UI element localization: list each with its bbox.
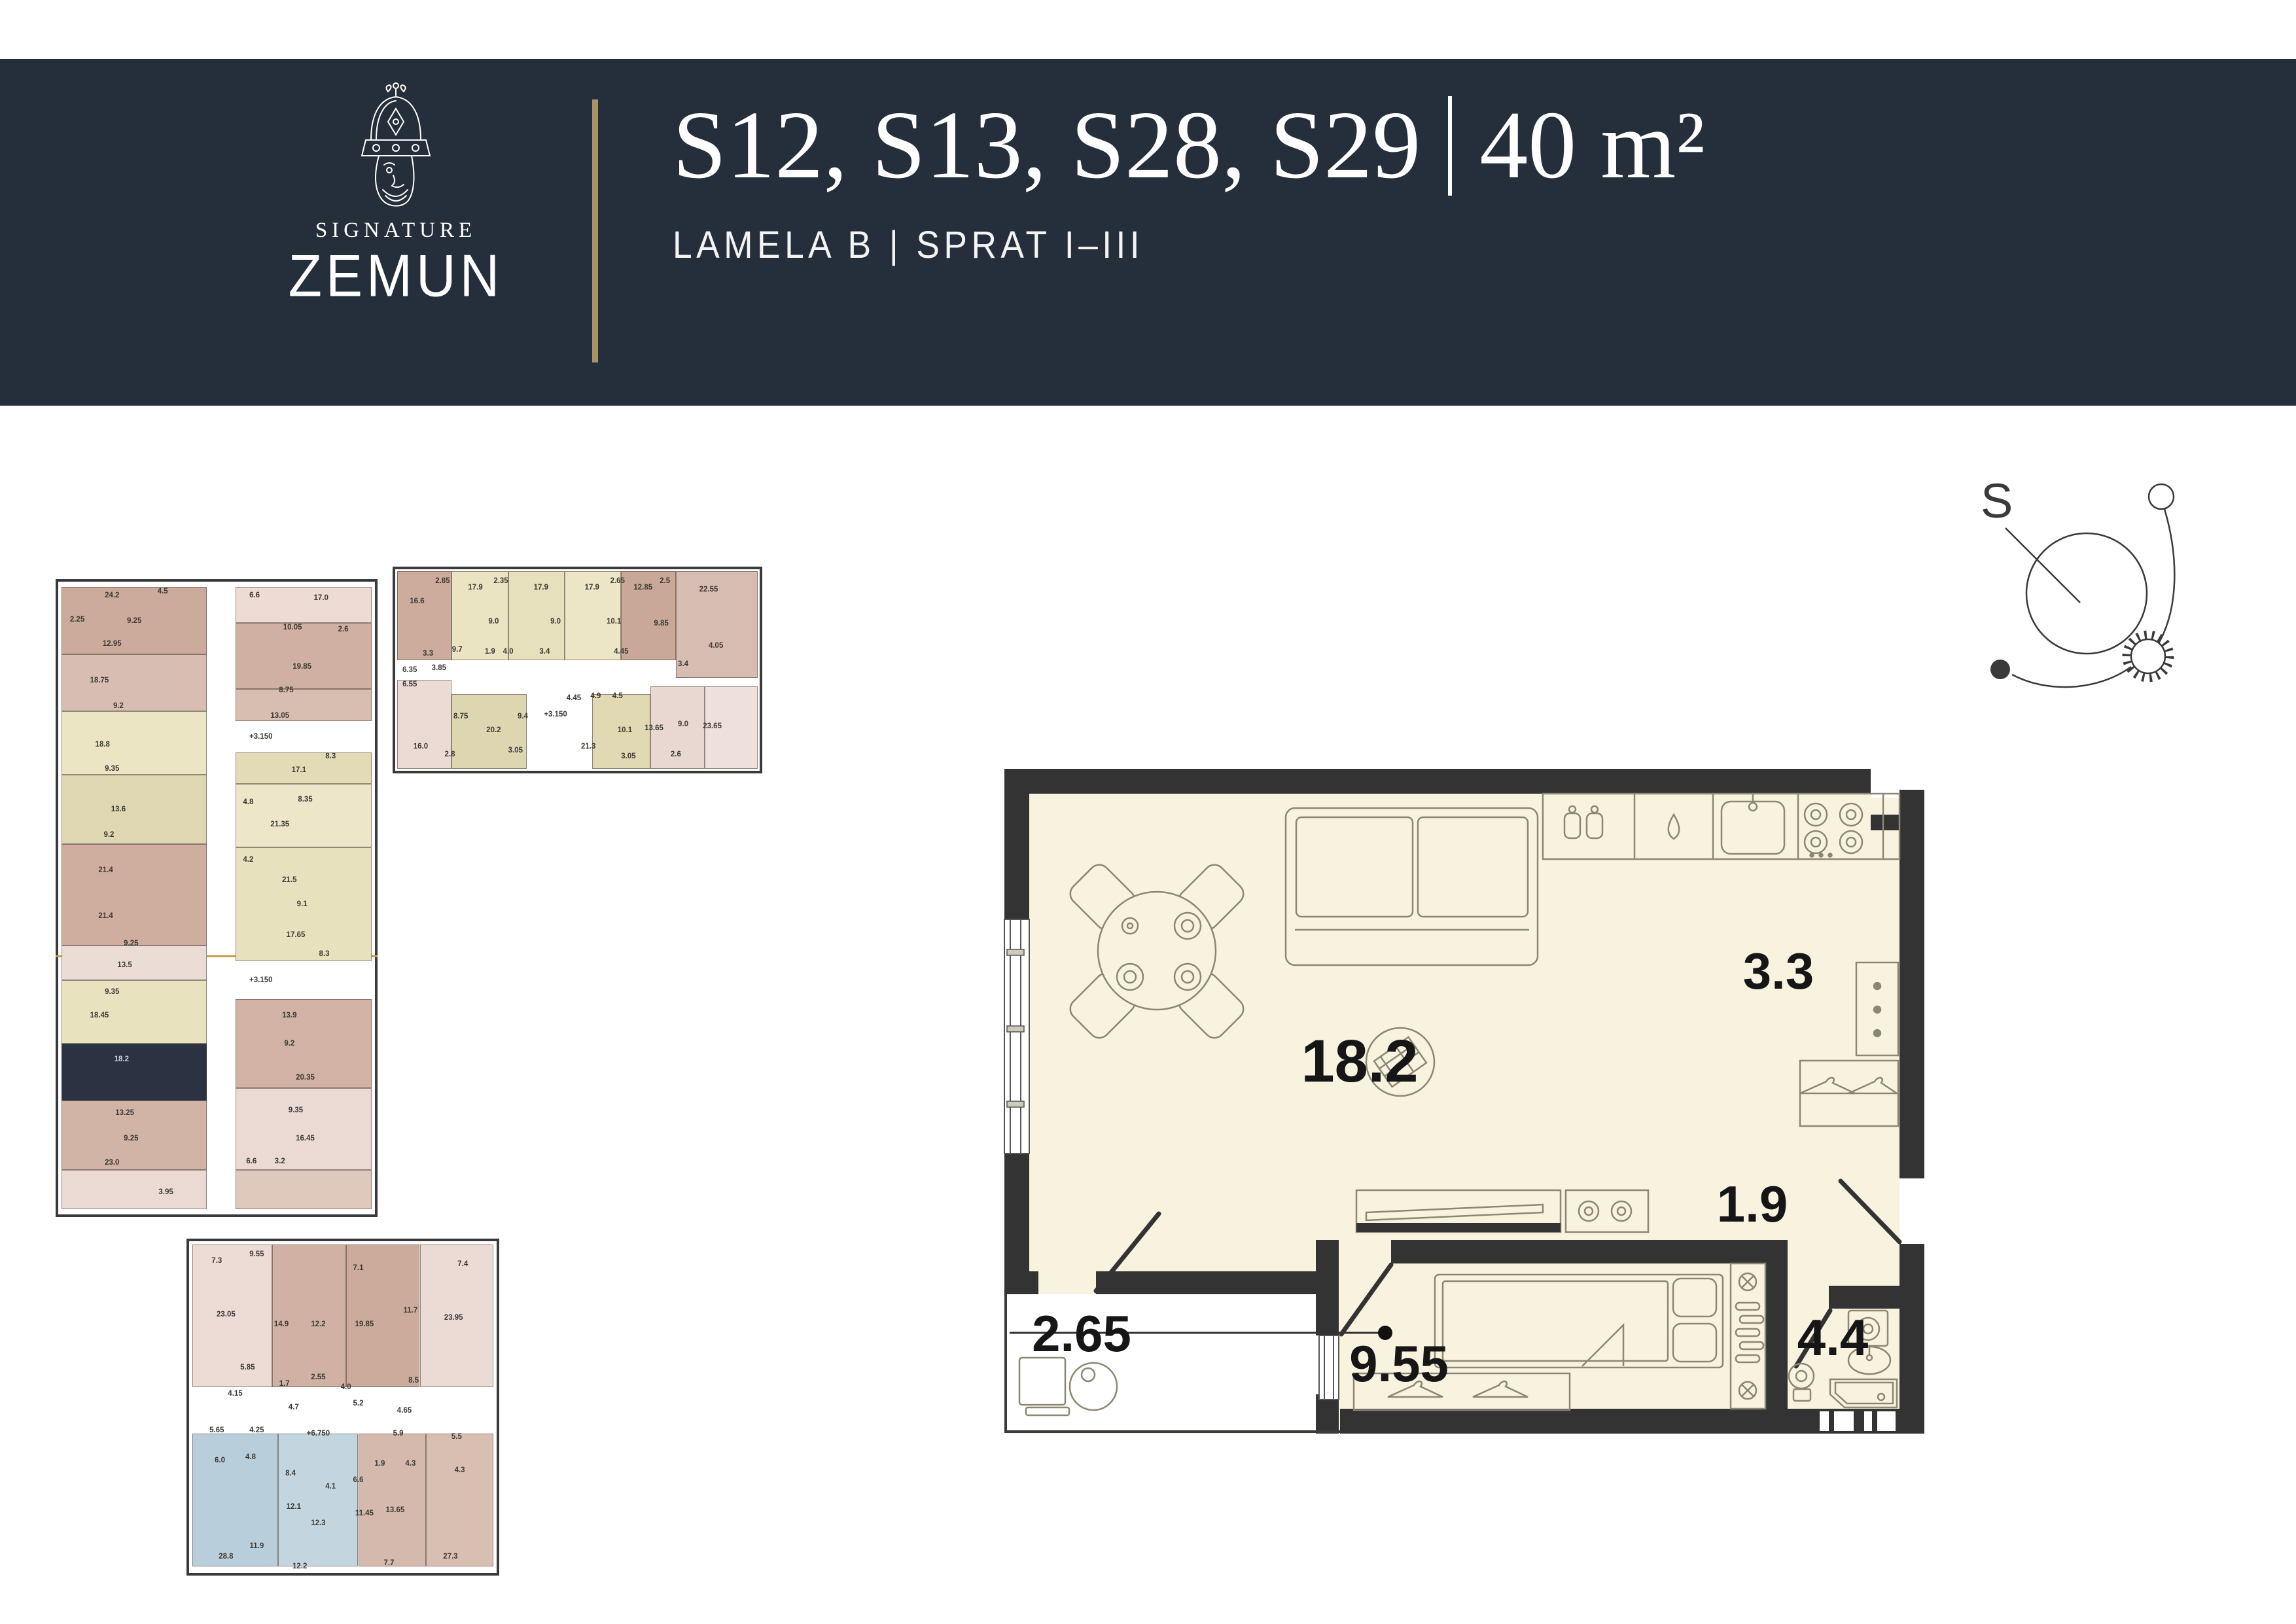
vent-shaft-icon <box>1731 1263 1765 1409</box>
apartment-unit <box>236 1170 372 1209</box>
mini-area-label: 4.25 <box>249 1426 264 1434</box>
mini-area-label: 12.1 <box>287 1503 301 1511</box>
bedroom-area-label: 9.55 <box>1349 1335 1449 1392</box>
apartment-unit <box>426 1434 493 1566</box>
mini-area-label: 9.2 <box>103 831 114 839</box>
mini-area-label: 8.3 <box>325 752 336 760</box>
mini-area-label: 21.4 <box>98 912 113 920</box>
mini-area-label: 7.1 <box>353 1264 364 1272</box>
mini-area-label: 23.05 <box>217 1311 236 1318</box>
mini-area-label: 9.2 <box>113 702 124 710</box>
titles-block: S12, S13, S28, S29 40 m² LAMELA B | SPRA… <box>673 85 1705 267</box>
mini-area-label: 11.7 <box>404 1307 418 1315</box>
mini-area-label: 1.9 <box>374 1460 385 1468</box>
mini-area-label: 4.8 <box>243 798 253 806</box>
mini-area-label: 6.55 <box>402 680 417 688</box>
mini-area-label: 17.9 <box>534 584 548 591</box>
mini-area-label: 2.85 <box>435 577 450 585</box>
apartment-unit <box>192 1434 279 1566</box>
mini-area-label: 7.3 <box>211 1257 222 1265</box>
mini-area-label: 8.4 <box>285 1470 296 1477</box>
mini-area-label: 27.3 <box>443 1553 457 1561</box>
crowned-king-icon <box>330 77 461 215</box>
compass: S <box>1966 455 2189 710</box>
entry-door-gap <box>1899 1178 1924 1244</box>
main-floor-plan: 18.2 3.3 1.9 2.65 9.55 4.4 <box>990 754 1945 1449</box>
mini-area-label: 17.0 <box>314 594 328 602</box>
mini-area-label: 22.55 <box>699 586 718 593</box>
mini-area-label: 8.75 <box>453 713 468 720</box>
living-area-label: 18.2 <box>1301 1028 1418 1095</box>
mini-area-label: 4.3 <box>455 1466 465 1474</box>
mini-area-label: 4.65 <box>397 1407 412 1415</box>
balcony-door-icon <box>1319 1335 1339 1400</box>
mini-area-label: 10.1 <box>618 726 632 734</box>
balcony-area-label: 2.65 <box>1032 1305 1131 1362</box>
mini-area-label: 21.35 <box>270 821 289 828</box>
mini-area-label: 18.45 <box>90 1012 109 1019</box>
mini-area-label: 17.1 <box>292 766 306 774</box>
mini-area-label: 13.65 <box>386 1506 405 1514</box>
mini-area-label: 9.4 <box>518 713 528 720</box>
mini-area-label: 2.5 <box>660 577 670 585</box>
brand-name-top: SIGNATURE <box>288 219 504 243</box>
compass-dot <box>1990 660 2010 679</box>
apartment-unit <box>278 1434 358 1566</box>
mini-area-label: 12.85 <box>633 584 652 591</box>
mini-area-label: 23.95 <box>444 1314 463 1322</box>
mini-area-label: 11.9 <box>250 1542 264 1550</box>
mini-area-label: 4.1 <box>325 1483 336 1491</box>
mini-area-label: 14.9 <box>274 1320 289 1328</box>
mini-area-label: 6.35 <box>402 666 417 674</box>
mini-area-label: 10.05 <box>283 624 302 631</box>
mini-area-label: 9.1 <box>297 900 308 908</box>
mini-area-label: 13.9 <box>282 1012 296 1019</box>
apartment-unit <box>236 784 372 847</box>
mini-area-label: 19.85 <box>292 663 311 671</box>
mini-area-label: 9.35 <box>289 1106 303 1114</box>
title-separator <box>1448 96 1452 196</box>
floor-plan-overview-bottom: 7.39.5523.0514.912.27.119.8511.77.423.95… <box>186 1239 499 1576</box>
mini-area-label: 3.3 <box>423 650 433 658</box>
mini-area-label: 8.5 <box>408 1377 419 1385</box>
mini-area-label: 3.05 <box>508 747 523 754</box>
mini-area-label: 17.9 <box>468 584 482 591</box>
mini-area-label: 18.75 <box>90 677 109 684</box>
gold-divider <box>592 99 598 362</box>
mini-area-label: 9.0 <box>550 618 561 626</box>
apartment-unit <box>236 689 372 720</box>
mini-area-label: 12.95 <box>103 640 122 648</box>
mini-area-label: 20.35 <box>296 1074 315 1082</box>
mini-area-label: 21.4 <box>98 866 113 874</box>
mini-area-label: 12.2 <box>292 1562 307 1570</box>
hall-area-label: 1.9 <box>1717 1175 1788 1233</box>
apartment-unit <box>397 680 452 769</box>
brand-logo: SIGNATURE ZEMUN <box>288 77 504 308</box>
apartment-unit <box>62 844 207 945</box>
mini-area-label: 13.05 <box>270 712 289 720</box>
apartment-unit <box>236 623 372 690</box>
mini-area-label: 16.45 <box>296 1135 315 1142</box>
mini-area-label: 4.9 <box>590 692 601 700</box>
mini-area-label: 9.25 <box>124 1135 138 1142</box>
apartment-unit <box>62 775 207 844</box>
mini-area-label: 7.7 <box>384 1559 395 1567</box>
brand-name-bottom: ZEMUN <box>288 241 504 310</box>
mini-area-label: +3.150 <box>544 711 567 718</box>
page-title-units: S12, S13, S28, S29 <box>673 85 1421 206</box>
apartment-unit <box>272 1244 346 1387</box>
mini-area-label: 5.65 <box>209 1426 224 1434</box>
mini-area-label: 12.2 <box>311 1320 325 1328</box>
mini-area-label: 21.3 <box>581 743 595 750</box>
mini-area-label: 3.2 <box>275 1157 285 1165</box>
mini-area-label: 11.45 <box>355 1509 374 1517</box>
apartment-plan-svg: 18.2 3.3 1.9 2.65 9.55 4.4 <box>990 754 1945 1449</box>
apartment-unit <box>62 1044 207 1101</box>
mini-area-label: 5.85 <box>240 1364 255 1371</box>
mini-area-label: +6.750 <box>307 1430 330 1438</box>
mini-area-label: 1.9 <box>485 648 495 656</box>
mini-area-label: 9.25 <box>124 940 138 947</box>
mini-area-label: 3.4 <box>539 648 550 656</box>
mini-area-label: 2.25 <box>70 616 84 624</box>
mini-area-label: 24.2 <box>105 591 119 599</box>
compass-icon: S <box>1966 455 2189 710</box>
floor-plan-overview-tall: 24.24.59.252.2512.9517.06.610.052.618.75… <box>56 579 378 1217</box>
apartment-unit <box>62 1170 207 1209</box>
mini-area-label: 4.0 <box>341 1383 351 1391</box>
mini-area-label: 9.7 <box>452 646 463 654</box>
apartment-unit <box>62 711 207 775</box>
mini-area-label: 9.2 <box>284 1040 294 1048</box>
mini-area-label: 5.2 <box>353 1400 364 1407</box>
mini-area-label: 3.4 <box>678 660 688 668</box>
mini-area-label: 16.0 <box>414 743 428 750</box>
mini-area-label: 9.25 <box>127 617 141 625</box>
mini-area-label: 2.8 <box>445 750 455 758</box>
mini-area-label: 23.65 <box>703 722 722 730</box>
compass-south-label: S <box>1981 474 2013 528</box>
mini-area-label: 6.6 <box>353 1476 364 1484</box>
mini-area-label: 2.35 <box>493 577 508 585</box>
mini-area-label: 4.5 <box>612 692 623 700</box>
mini-area-label: 4.2 <box>243 856 253 864</box>
mini-area-label: 8.75 <box>279 686 293 694</box>
floor-plan-overview-wide: 16.62.853.39.717.99.01.94.02.3517.99.03.… <box>393 567 762 773</box>
mini-area-label: 21.5 <box>282 876 296 884</box>
mini-area-label: 9.85 <box>654 620 668 627</box>
mini-area-label: 3.95 <box>158 1188 173 1196</box>
mini-area-label: 4.8 <box>245 1453 256 1461</box>
mini-area-label: +3.150 <box>249 976 273 984</box>
mini-area-label: 6.0 <box>215 1456 225 1464</box>
mini-area-label: 7.4 <box>457 1260 468 1268</box>
mini-area-label: 2.6 <box>338 626 349 633</box>
mini-area-label: 12.3 <box>311 1519 325 1527</box>
mini-area-label: 6.6 <box>249 591 260 599</box>
mini-area-label: 4.45 <box>567 694 581 702</box>
mini-area-label: 18.2 <box>115 1055 129 1063</box>
mini-area-label: 6.6 <box>246 1157 256 1165</box>
mini-area-label: 5.5 <box>451 1433 462 1441</box>
window-icon <box>1004 919 1029 1154</box>
mini-area-label: 9.0 <box>488 618 499 626</box>
mini-area-label: 5.9 <box>393 1430 404 1438</box>
mini-area-label: 13.65 <box>645 724 663 732</box>
mini-area-label: 8.35 <box>298 796 312 803</box>
page-subtitle: LAMELA B | SPRAT I–III <box>673 223 1623 267</box>
mini-area-label: 10.1 <box>607 618 621 626</box>
mini-area-label: 19.85 <box>355 1320 374 1328</box>
mini-area-label: 16.6 <box>410 597 424 605</box>
mini-area-label: 13.6 <box>111 805 126 813</box>
mini-area-label: 1.7 <box>279 1380 290 1388</box>
bathroom-area-label: 4.4 <box>1797 1309 1868 1366</box>
mini-area-label: 4.15 <box>228 1390 242 1398</box>
page-title-area: 40 m² <box>1479 85 1705 206</box>
kitchen-area-label: 3.3 <box>1743 942 1814 1000</box>
mini-area-label: 13.5 <box>117 961 132 969</box>
mini-area-label: 4.45 <box>614 648 628 656</box>
mini-area-label: 2.65 <box>610 577 625 585</box>
apartment-unit <box>62 945 207 980</box>
mini-area-label: 13.25 <box>115 1109 134 1117</box>
mini-area-label: 3.85 <box>432 664 446 672</box>
mini-area-label: 9.55 <box>249 1250 264 1258</box>
mini-area-label: 2.6 <box>671 750 681 758</box>
mini-area-label: +3.150 <box>249 733 273 741</box>
mini-area-label: 23.0 <box>105 1159 119 1167</box>
mini-area-label: 4.5 <box>158 588 168 595</box>
mini-area-label: 9.0 <box>678 720 688 728</box>
mini-area-label: 4.3 <box>405 1460 415 1468</box>
mini-area-label: 18.8 <box>96 741 110 749</box>
mini-area-label: 8.3 <box>319 950 330 958</box>
apartment-unit <box>62 654 207 711</box>
mini-area-label: 17.65 <box>287 931 306 939</box>
apartment-unit <box>359 1434 426 1566</box>
mini-area-label: 20.2 <box>486 726 501 734</box>
brochure-page: SIGNATURE ZEMUN S12, S13, S28, S29 40 m²… <box>0 0 2296 1624</box>
header-bar: SIGNATURE ZEMUN S12, S13, S28, S29 40 m²… <box>0 59 2296 406</box>
mini-area-label: 4.7 <box>289 1403 299 1411</box>
mini-area-label: 17.9 <box>585 584 599 591</box>
apartment-unit <box>62 980 207 1044</box>
mini-area-label: 2.55 <box>311 1373 325 1381</box>
mini-area-label: 9.35 <box>105 765 119 773</box>
mini-area-label: 28.8 <box>219 1553 233 1561</box>
mini-area-label: 4.0 <box>503 648 514 656</box>
mini-area-label: 9.35 <box>105 988 119 996</box>
mini-area-label: 4.05 <box>709 642 723 650</box>
mini-area-label: 3.05 <box>621 752 635 760</box>
